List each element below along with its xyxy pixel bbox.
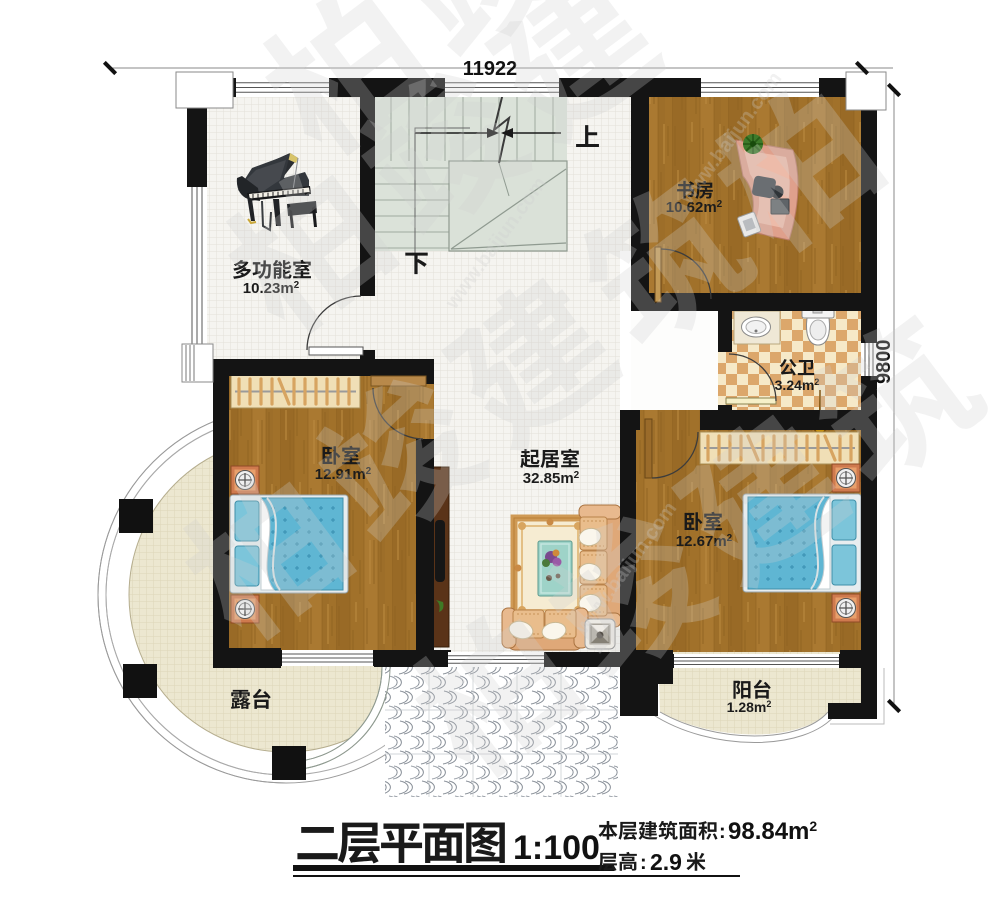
svg-text:32.85m2: 32.85m2	[523, 470, 580, 487]
svg-text::: :	[719, 821, 726, 843]
svg-text:1.28m2: 1.28m2	[727, 699, 772, 715]
svg-text::: :	[640, 852, 647, 874]
svg-text:3.24m2: 3.24m2	[775, 377, 820, 393]
svg-text:98.84m2: 98.84m2	[728, 818, 817, 845]
svg-text:11922: 11922	[463, 58, 518, 80]
svg-text:1:100: 1:100	[513, 829, 600, 867]
svg-text:2.9: 2.9	[650, 849, 682, 875]
